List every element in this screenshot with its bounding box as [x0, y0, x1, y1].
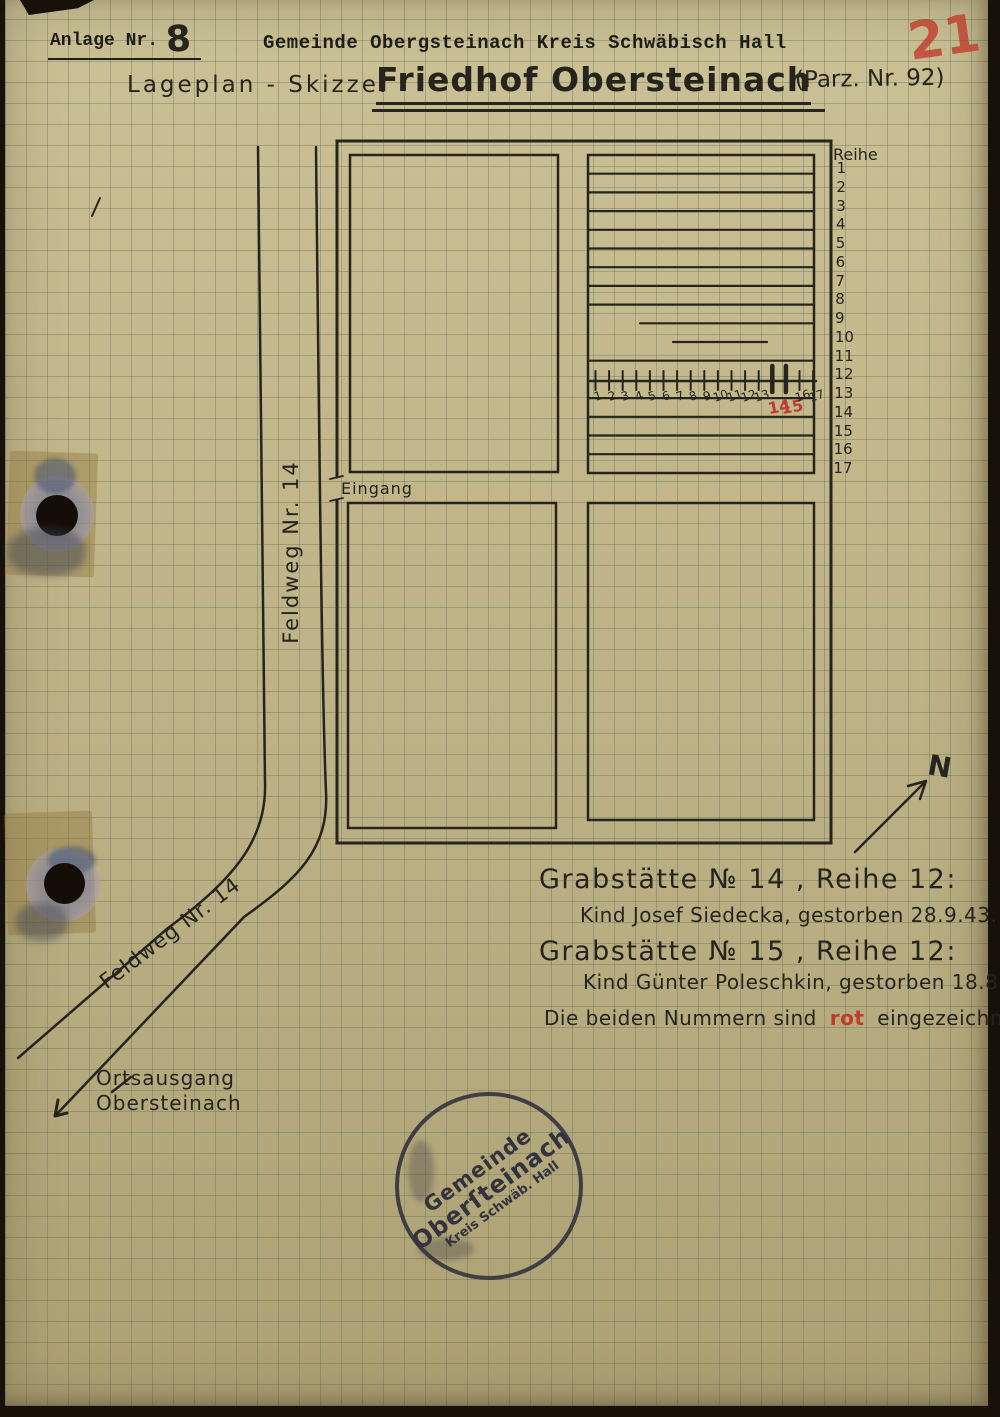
note-red-word: rot [830, 1006, 865, 1030]
row-number: 10 [835, 328, 854, 346]
row-number: 7 [835, 272, 845, 290]
field-upper-left [350, 155, 558, 472]
gemeinde-header: Gemeinde Obergsteinach Kreis Schwäbisch … [263, 32, 787, 54]
scanned-document-page: { "document": { "anlage_label": "Anlage … [0, 0, 1000, 1417]
row-number: 15 [834, 422, 853, 440]
feldweg-vertical-label: Feldweg Nr. 14 [279, 460, 303, 644]
row-number: 17 [833, 459, 852, 477]
anlage-number: 8 [165, 23, 192, 57]
row-number: 2 [836, 178, 846, 196]
exit-label-line1: Ortsausgang [96, 1066, 235, 1090]
grave14-title: Grabstätte № 14 , Reihe 12: [539, 864, 957, 895]
red-numbers-note: Die beiden Nummern sind rot eingezeichne… [544, 1006, 1000, 1030]
grave15-title: Grabstätte № 15 , Reihe 12: [539, 936, 957, 967]
row-number: 11 [835, 347, 854, 365]
row-number: 5 [836, 234, 846, 252]
pen-stray-mark [92, 198, 100, 216]
field-upper-right-rows [588, 155, 814, 473]
field-lower-left [348, 503, 556, 828]
field-lower-right [588, 503, 814, 820]
note-suffix: eingezeichnet [877, 1006, 1000, 1030]
row-number: 6 [836, 253, 846, 271]
row-number: 16 [834, 440, 853, 458]
row-number: 13 [834, 384, 853, 402]
page-number: 21 [904, 3, 984, 72]
grave15-detail: Kind Günter Poleschkin, gestorben 18.8.4… [583, 970, 1000, 994]
row-number: 3 [836, 197, 846, 215]
row-number: 12 [834, 365, 853, 383]
row-number: 4 [836, 215, 846, 233]
anlage-label: Anlage Nr. [50, 26, 158, 56]
note-prefix: Die beiden Nummern sind [544, 1006, 817, 1030]
row-number-labels: 1234567891011121314151617 [835, 159, 865, 479]
row-number: 1 [837, 159, 847, 177]
row-number: 14 [834, 403, 853, 421]
north-arrow [855, 781, 926, 852]
anlage-heading: Anlage Nr. 8 [48, 24, 201, 60]
title-prefix: Lageplan - Skizze: [127, 72, 390, 98]
road-edge-left [18, 147, 265, 1058]
grave-number: 15 [780, 397, 797, 418]
grave-number-labels: 1234567891011121314151617 [591, 389, 821, 419]
grave14-detail: Kind Josef Siedecka, gestorben 28.9.43. [580, 903, 997, 927]
entrance-label: Eingang [341, 479, 413, 498]
row-number: 8 [835, 290, 845, 308]
row-number: 9 [835, 309, 845, 327]
exit-label-line2: Obersteinach [96, 1091, 242, 1115]
page-title: Friedhof Obersteinach [372, 60, 825, 112]
